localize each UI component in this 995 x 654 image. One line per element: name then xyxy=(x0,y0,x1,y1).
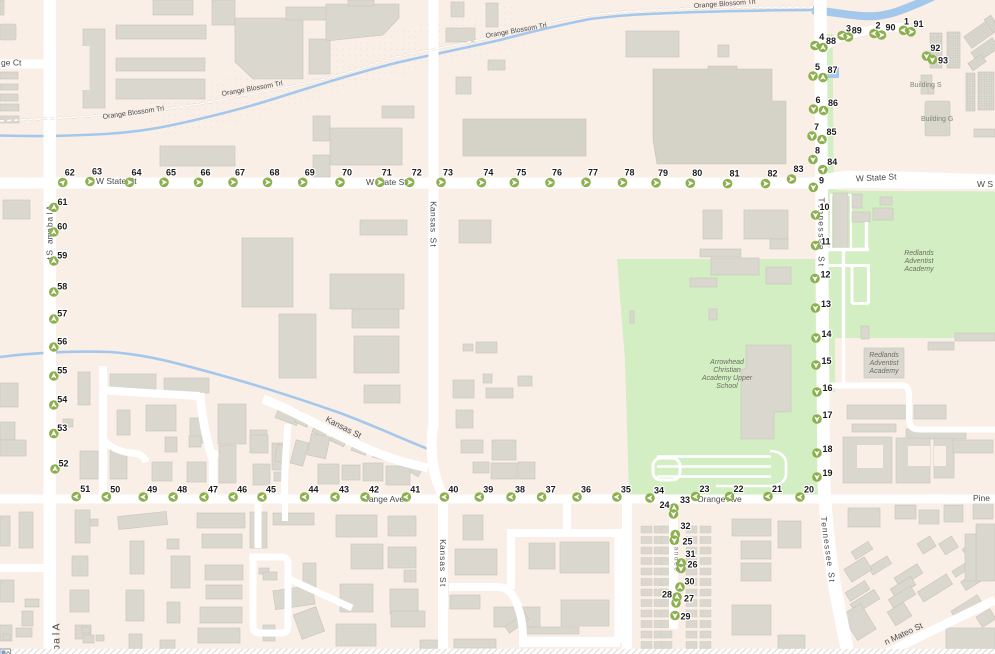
svg-text:1: 1 xyxy=(904,17,909,27)
svg-text:e: e xyxy=(822,539,832,544)
svg-text:30: 30 xyxy=(685,577,695,587)
svg-text:84: 84 xyxy=(827,157,837,167)
svg-text:27: 27 xyxy=(684,594,694,604)
svg-text:Redlands: Redlands xyxy=(904,250,934,257)
svg-text:20: 20 xyxy=(804,485,814,495)
svg-text:Pine: Pine xyxy=(973,493,990,503)
svg-text:b: b xyxy=(45,222,55,227)
svg-text:80: 80 xyxy=(692,168,702,178)
svg-text:78: 78 xyxy=(625,168,635,178)
svg-text:s: s xyxy=(429,217,439,221)
svg-text:6: 6 xyxy=(816,95,821,105)
svg-text:14: 14 xyxy=(822,329,832,339)
svg-text:s: s xyxy=(438,556,448,560)
svg-text:S: S xyxy=(826,572,836,578)
svg-text:a: a xyxy=(673,547,680,551)
svg-text:W S: W S xyxy=(977,179,993,189)
svg-text:45: 45 xyxy=(266,485,276,495)
svg-text:89: 89 xyxy=(852,26,862,36)
svg-text:n: n xyxy=(438,550,448,555)
svg-text:46: 46 xyxy=(237,485,247,495)
svg-text:72: 72 xyxy=(412,167,422,177)
svg-text:29: 29 xyxy=(681,612,691,622)
svg-text:S: S xyxy=(45,250,55,256)
svg-text:70: 70 xyxy=(342,167,352,177)
svg-text:4: 4 xyxy=(819,32,824,42)
svg-text:26: 26 xyxy=(688,560,698,570)
svg-text:28: 28 xyxy=(662,590,672,600)
svg-text:65: 65 xyxy=(166,167,176,177)
svg-text:l: l xyxy=(51,633,63,635)
svg-text:33: 33 xyxy=(680,495,690,505)
svg-text:15: 15 xyxy=(822,356,832,366)
svg-text:W State St: W State St xyxy=(366,177,407,187)
svg-text:A: A xyxy=(51,623,63,630)
svg-text:19: 19 xyxy=(823,468,833,478)
svg-text:61: 61 xyxy=(58,197,68,207)
svg-text:67: 67 xyxy=(235,167,245,177)
svg-text:48: 48 xyxy=(177,485,187,495)
svg-text:79: 79 xyxy=(658,168,668,178)
svg-text:8: 8 xyxy=(815,146,820,156)
svg-text:90: 90 xyxy=(886,23,896,33)
svg-text:42: 42 xyxy=(369,485,379,495)
svg-text:76: 76 xyxy=(552,168,562,178)
svg-text:55: 55 xyxy=(57,366,67,376)
svg-text:35: 35 xyxy=(621,485,631,495)
svg-text:17: 17 xyxy=(823,410,833,420)
svg-text:a: a xyxy=(438,545,448,550)
svg-text:9: 9 xyxy=(819,176,824,186)
svg-text:50: 50 xyxy=(110,484,120,494)
svg-text:24: 24 xyxy=(660,500,670,510)
svg-text:a: a xyxy=(429,222,439,227)
svg-text:a: a xyxy=(51,638,63,644)
svg-text:s: s xyxy=(817,227,827,231)
svg-text:60: 60 xyxy=(57,222,67,232)
svg-text:77: 77 xyxy=(588,167,598,177)
svg-text:59: 59 xyxy=(57,251,67,261)
svg-text:92: 92 xyxy=(930,43,940,53)
svg-text:39: 39 xyxy=(483,485,493,495)
svg-text:Building G: Building G xyxy=(921,116,953,123)
svg-text:40: 40 xyxy=(448,485,458,495)
svg-text:S: S xyxy=(817,256,827,262)
svg-text:43: 43 xyxy=(339,485,349,495)
svg-text:73: 73 xyxy=(443,167,453,177)
svg-text:e: e xyxy=(817,221,827,226)
svg-text:71: 71 xyxy=(382,167,392,177)
svg-text:a: a xyxy=(45,217,55,222)
svg-text:69: 69 xyxy=(305,167,315,177)
svg-text:56: 56 xyxy=(57,337,67,347)
svg-text:Academy Upper: Academy Upper xyxy=(701,375,753,382)
svg-text:l: l xyxy=(45,213,55,215)
svg-text:91: 91 xyxy=(914,19,924,29)
svg-text:n: n xyxy=(673,552,680,556)
svg-text:T: T xyxy=(819,516,829,521)
svg-text:58: 58 xyxy=(57,282,67,292)
svg-text:2: 2 xyxy=(876,21,881,31)
svg-text:54: 54 xyxy=(57,395,67,405)
svg-text:62: 62 xyxy=(65,168,75,178)
svg-text:Christian: Christian xyxy=(713,367,741,374)
svg-text:41: 41 xyxy=(410,485,420,495)
svg-text:44: 44 xyxy=(309,485,319,495)
svg-text:Academy: Academy xyxy=(868,368,899,375)
svg-text:12: 12 xyxy=(821,270,831,280)
svg-text:Redlands: Redlands xyxy=(869,352,899,359)
svg-text:32: 32 xyxy=(681,521,691,531)
svg-text:47: 47 xyxy=(208,485,218,495)
svg-text:13: 13 xyxy=(821,299,831,309)
svg-text:74: 74 xyxy=(483,168,493,178)
svg-text:S: S xyxy=(438,577,448,583)
svg-text:11: 11 xyxy=(821,237,831,247)
svg-text:52: 52 xyxy=(59,459,69,469)
svg-text:87: 87 xyxy=(828,65,838,75)
svg-text:ge Ct: ge Ct xyxy=(1,58,22,68)
svg-text:n: n xyxy=(820,528,830,533)
svg-text:School: School xyxy=(716,383,738,390)
svg-text:88: 88 xyxy=(826,36,836,46)
svg-text:68: 68 xyxy=(270,167,280,177)
svg-text:range Ave: range Ave xyxy=(366,494,404,504)
svg-text:a: a xyxy=(438,561,448,566)
svg-text:18: 18 xyxy=(823,444,833,454)
svg-text:10: 10 xyxy=(820,202,830,212)
svg-text:93: 93 xyxy=(938,56,948,66)
svg-text:e: e xyxy=(820,522,830,527)
svg-text:66: 66 xyxy=(201,167,211,177)
svg-text:21: 21 xyxy=(772,484,782,494)
svg-text:31: 31 xyxy=(686,549,696,559)
svg-text:Academy: Academy xyxy=(903,266,934,273)
svg-text:s: s xyxy=(438,567,448,571)
svg-text:Adventist: Adventist xyxy=(869,360,900,367)
svg-text:a: a xyxy=(45,239,55,244)
svg-text:36: 36 xyxy=(581,485,591,495)
svg-text:s: s xyxy=(823,550,833,554)
svg-text:3: 3 xyxy=(846,24,851,34)
svg-text:64: 64 xyxy=(132,167,142,177)
svg-text:e: e xyxy=(825,561,835,566)
svg-text:Building S: Building S xyxy=(910,82,942,89)
svg-text:22: 22 xyxy=(734,484,744,494)
svg-text:5: 5 xyxy=(815,62,820,72)
svg-text:23: 23 xyxy=(700,484,710,494)
svg-text:s: s xyxy=(823,545,833,549)
svg-text:49: 49 xyxy=(147,485,157,495)
svg-text:Arrowhead: Arrowhead xyxy=(709,359,745,366)
svg-text:63: 63 xyxy=(92,167,102,177)
svg-text:16: 16 xyxy=(823,383,833,393)
svg-text:25: 25 xyxy=(683,537,693,547)
svg-text:83: 83 xyxy=(794,164,804,174)
svg-text:n: n xyxy=(821,533,831,538)
svg-text:n: n xyxy=(429,212,439,217)
svg-text:51: 51 xyxy=(80,484,90,494)
svg-text:37: 37 xyxy=(546,485,556,495)
svg-text:Orange Ave: Orange Ave xyxy=(697,494,742,504)
svg-text:81: 81 xyxy=(730,169,740,179)
svg-text:53: 53 xyxy=(57,423,67,433)
svg-text:Adventist: Adventist xyxy=(904,258,935,265)
svg-text:38: 38 xyxy=(515,485,525,495)
svg-text:82: 82 xyxy=(768,169,778,179)
svg-text:34: 34 xyxy=(654,486,664,496)
svg-text:S: S xyxy=(429,238,439,244)
svg-text:75: 75 xyxy=(516,168,526,178)
svg-text:86: 86 xyxy=(828,98,838,108)
svg-text:85: 85 xyxy=(827,127,837,137)
svg-text:57: 57 xyxy=(57,309,67,319)
svg-text:e: e xyxy=(824,556,834,561)
svg-text:7: 7 xyxy=(814,122,819,132)
svg-text:s: s xyxy=(429,228,439,232)
